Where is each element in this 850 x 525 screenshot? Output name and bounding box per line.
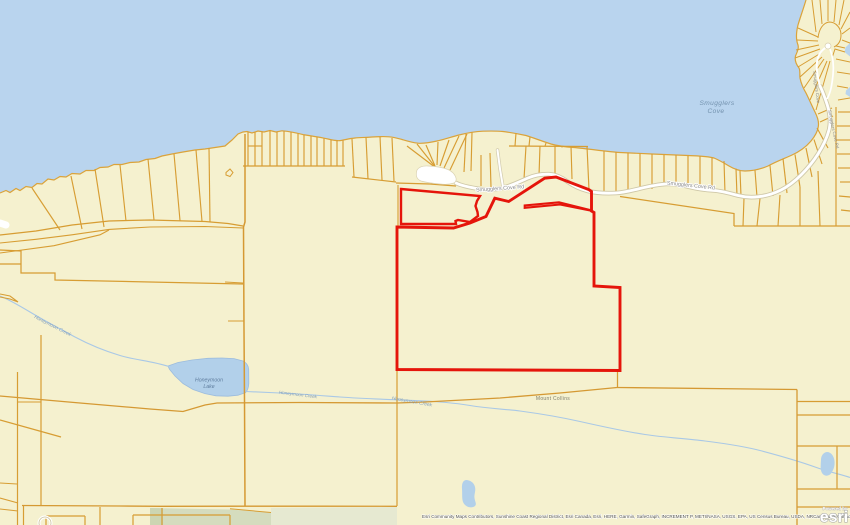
- svg-text:Smugglers: Smugglers: [699, 100, 734, 107]
- svg-text:Lake: Lake: [203, 384, 214, 390]
- svg-text:Mount Collins: Mount Collins: [536, 396, 570, 402]
- svg-text:Esri Community Maps Contributo: Esri Community Maps Contributors, Sunshi…: [422, 514, 850, 519]
- svg-text:esri: esri: [820, 509, 848, 525]
- svg-text:Cove: Cove: [708, 108, 725, 115]
- svg-text:Honeymoon: Honeymoon: [195, 378, 223, 384]
